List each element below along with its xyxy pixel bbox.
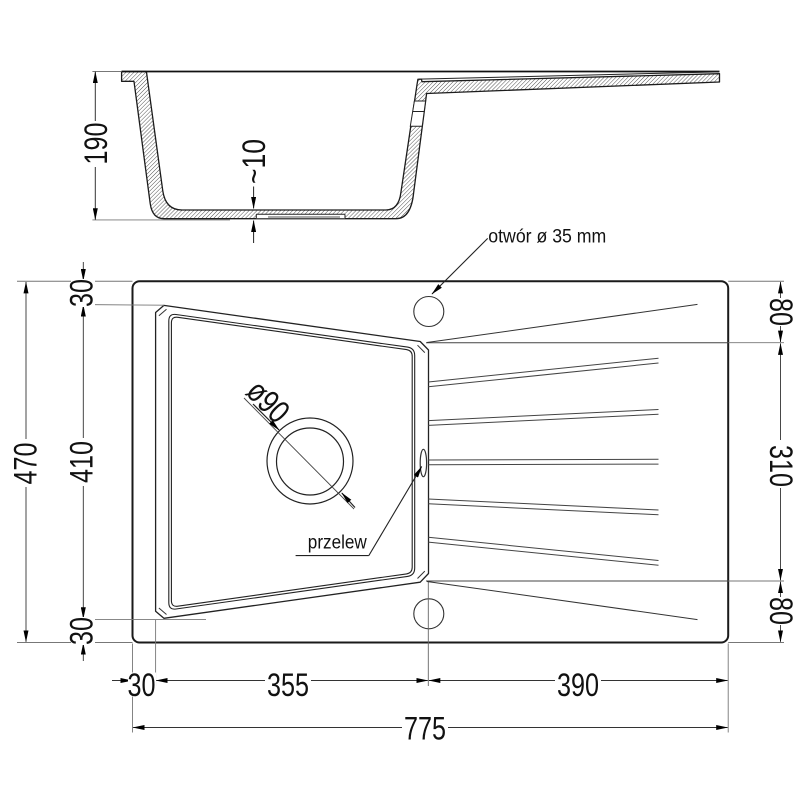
svg-text:775: 775 [404,711,446,747]
svg-text:410: 410 [64,441,100,483]
svg-text:80: 80 [763,298,799,326]
svg-text:470: 470 [8,443,44,485]
svg-text:30: 30 [128,667,156,703]
svg-text:~10: ~10 [236,139,272,184]
svg-text:30: 30 [64,279,100,307]
svg-text:310: 310 [763,445,799,487]
svg-text:80: 80 [763,597,799,625]
svg-text:190: 190 [78,123,114,165]
svg-text:otwór ø 35 mm: otwór ø 35 mm [488,226,606,248]
svg-text:przelew: przelew [308,532,368,554]
svg-text:30: 30 [64,617,100,645]
svg-text:355: 355 [267,667,309,703]
svg-text:390: 390 [557,667,599,703]
